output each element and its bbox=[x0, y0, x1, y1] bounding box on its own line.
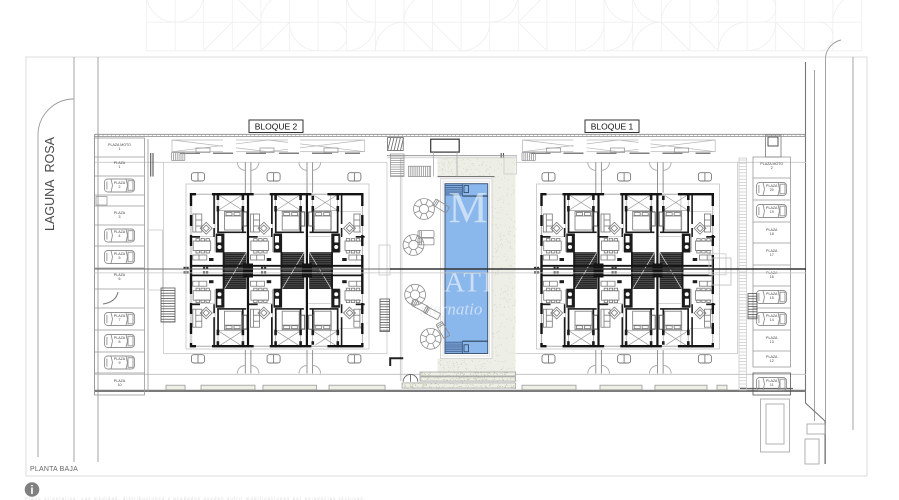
svg-text:PLANTA BAJA: PLANTA BAJA bbox=[30, 466, 78, 473]
svg-text:14: 14 bbox=[770, 318, 774, 322]
svg-text:17: 17 bbox=[770, 253, 774, 257]
svg-text:BLOQUE 2: BLOQUE 2 bbox=[255, 122, 298, 132]
svg-text:11: 11 bbox=[770, 383, 774, 387]
svg-text:18: 18 bbox=[770, 232, 774, 236]
svg-text:1: 1 bbox=[119, 165, 121, 169]
svg-text:2: 2 bbox=[119, 185, 121, 189]
svg-text:8: 8 bbox=[119, 340, 121, 344]
svg-text:20: 20 bbox=[770, 188, 774, 192]
svg-text:6: 6 bbox=[119, 277, 121, 281]
svg-text:LAGUNA ROSA: LAGUNA ROSA bbox=[43, 136, 57, 231]
svg-text:Plano orientativo. Las medidas: Plano orientativo. Las medidas, distribu… bbox=[25, 496, 365, 500]
svg-text:5: 5 bbox=[119, 256, 121, 260]
svg-text:1: 1 bbox=[119, 147, 121, 151]
svg-text:15: 15 bbox=[770, 296, 774, 300]
svg-text:2: 2 bbox=[771, 166, 773, 170]
svg-text:12: 12 bbox=[770, 359, 774, 363]
svg-text:10: 10 bbox=[118, 383, 122, 387]
svg-text:13: 13 bbox=[770, 340, 774, 344]
svg-text:M: M bbox=[448, 183, 487, 232]
svg-text:7: 7 bbox=[119, 318, 121, 322]
svg-text:4: 4 bbox=[119, 234, 121, 238]
svg-text:16: 16 bbox=[770, 275, 774, 279]
svg-text:i: i bbox=[30, 485, 33, 497]
svg-text:3: 3 bbox=[119, 215, 121, 219]
svg-text:9: 9 bbox=[119, 361, 121, 365]
svg-text:19: 19 bbox=[770, 210, 774, 214]
svg-text:ATI: ATI bbox=[444, 267, 494, 299]
svg-text:BLOQUE 1: BLOQUE 1 bbox=[591, 122, 634, 132]
